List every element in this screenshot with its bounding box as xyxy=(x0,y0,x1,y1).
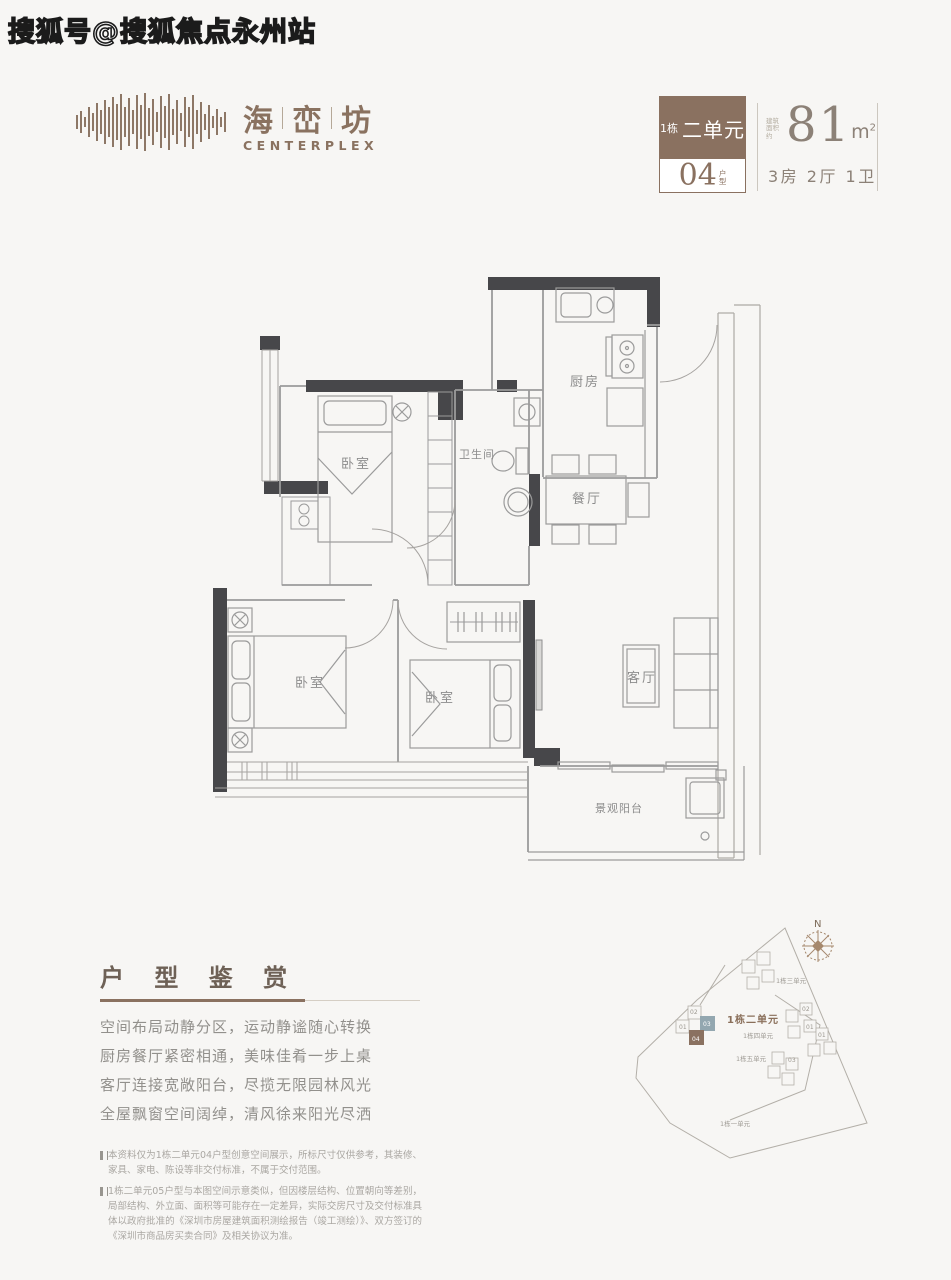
section-divider xyxy=(100,999,420,1002)
note-bullet-icon xyxy=(100,1187,108,1196)
label-unit-1: 1栋一单元 xyxy=(720,1119,751,1128)
unit-badge: 1栋 二单元 04 户 型 xyxy=(659,96,746,193)
unit-number: 02 xyxy=(802,1006,810,1013)
label-bedroom-2: 卧室 xyxy=(295,675,325,691)
label-dining: 餐厅 xyxy=(572,491,602,507)
label-unit-2-highlight: 1栋二单元 xyxy=(727,1013,779,1026)
type-number: 04 xyxy=(679,161,717,191)
brand-title: 海 峦 坊 xyxy=(243,96,371,140)
unit-number: 03 xyxy=(788,1057,796,1064)
disclaimer-notes: 本资料仅为1栋二单元04户型创意空间展示，所标尺寸仅供参考，其装修、家具、家电、… xyxy=(100,1148,422,1250)
label-bathroom: 卫生间 xyxy=(459,447,495,461)
unit-number: 03 xyxy=(703,1021,711,1028)
corridor-outline xyxy=(718,305,760,858)
section-title: 户 型 鉴 赏 xyxy=(100,958,298,993)
tv xyxy=(536,640,542,710)
site-map: N 02 01 03 04 xyxy=(612,898,937,1183)
brand-subtitle: CENTERPLEX xyxy=(243,138,378,153)
wardrobe-1 xyxy=(428,392,452,585)
unit-number: 01 xyxy=(818,1032,826,1039)
unit-number: 02 xyxy=(690,1009,698,1016)
divider xyxy=(877,103,878,191)
walls-thin xyxy=(227,290,718,852)
bed-3 xyxy=(410,602,520,748)
label-bedroom-1: 卧室 xyxy=(341,456,371,472)
divider xyxy=(331,107,332,129)
label-bedroom-3: 卧室 xyxy=(425,690,455,706)
area-info: 建筑 面积约 81 m2 xyxy=(766,100,876,150)
label-unit-3: 1栋三单元 xyxy=(776,976,807,985)
note-item: 1栋二单元05户型与本图空间示意类似，但因楼层结构、位置朝向等差别，局部结构、外… xyxy=(100,1184,422,1244)
svg-text:N: N xyxy=(814,919,821,930)
watermark: 搜狐号@搜狐焦点永州站 xyxy=(8,10,316,49)
brand-char-1: 海 xyxy=(243,96,273,140)
area-value: 81 xyxy=(786,100,851,150)
unit-number: 04 xyxy=(692,1036,700,1043)
ac-niche xyxy=(282,497,330,585)
poster-page: 搜狐号@搜狐焦点永州站 海 峦 坊 CENTERPLEX 1栋 二单元 04 户… xyxy=(0,0,951,1280)
divider xyxy=(282,107,283,129)
note-item: 本资料仅为1栋二单元04户型创意空间展示，所标尺寸仅供参考，其装修、家具、家电、… xyxy=(100,1148,422,1178)
label-kitchen: 厨房 xyxy=(570,374,600,390)
apprec-line: 厨房餐厅紧密相通，美味佳肴一步上桌 xyxy=(100,1042,430,1071)
brand-char-2: 峦 xyxy=(292,96,322,140)
type-suffix: 户 型 xyxy=(719,170,727,186)
apprec-line: 空间布局动静分区，运动静谧随心转换 xyxy=(100,1013,430,1042)
bay-window-left xyxy=(262,350,278,481)
divider xyxy=(757,103,758,191)
label-living: 客厅 xyxy=(627,670,657,686)
unit-badge-top: 1栋 二单元 xyxy=(660,97,745,159)
floor-plan: 厨房 卫生间 餐厅 卧室 卧室 卧室 客厅 景观阳台 xyxy=(205,265,770,880)
apprec-line: 全屋飘窗空间阔绰，清风徐来阳光尽洒 xyxy=(100,1100,430,1129)
label-balcony: 景观阳台 xyxy=(595,801,643,815)
area-prefix: 建筑 面积约 xyxy=(766,118,784,141)
unit-number: 01 xyxy=(806,1024,814,1031)
compass-icon: N xyxy=(802,919,834,962)
bottom-windows xyxy=(215,762,528,797)
bed-2 xyxy=(228,608,346,752)
area-unit: m2 xyxy=(851,121,876,143)
walls-dark xyxy=(213,277,660,792)
block-label: 1栋 xyxy=(660,120,678,136)
section-body: 空间布局动静分区，运动静谧随心转换 厨房餐厅紧密相通，美味佳肴一步上桌 客厅连接… xyxy=(100,1013,430,1129)
room-count: 3房 2厅 1卫 xyxy=(768,163,877,187)
unit-badge-bottom: 04 户 型 xyxy=(660,159,745,193)
logo-barcode-icon xyxy=(76,92,234,152)
label-unit-4: 1栋四单元 xyxy=(743,1031,774,1040)
note-bullet-icon xyxy=(100,1151,108,1160)
unit-number: 01 xyxy=(679,1024,687,1031)
apprec-line: 客厅连接宽敞阳台，尽揽无限园林风光 xyxy=(100,1071,430,1100)
brand-char-3: 坊 xyxy=(341,96,371,140)
unit-label: 二单元 xyxy=(682,114,745,143)
label-unit-5: 1栋五单元 xyxy=(736,1054,767,1063)
